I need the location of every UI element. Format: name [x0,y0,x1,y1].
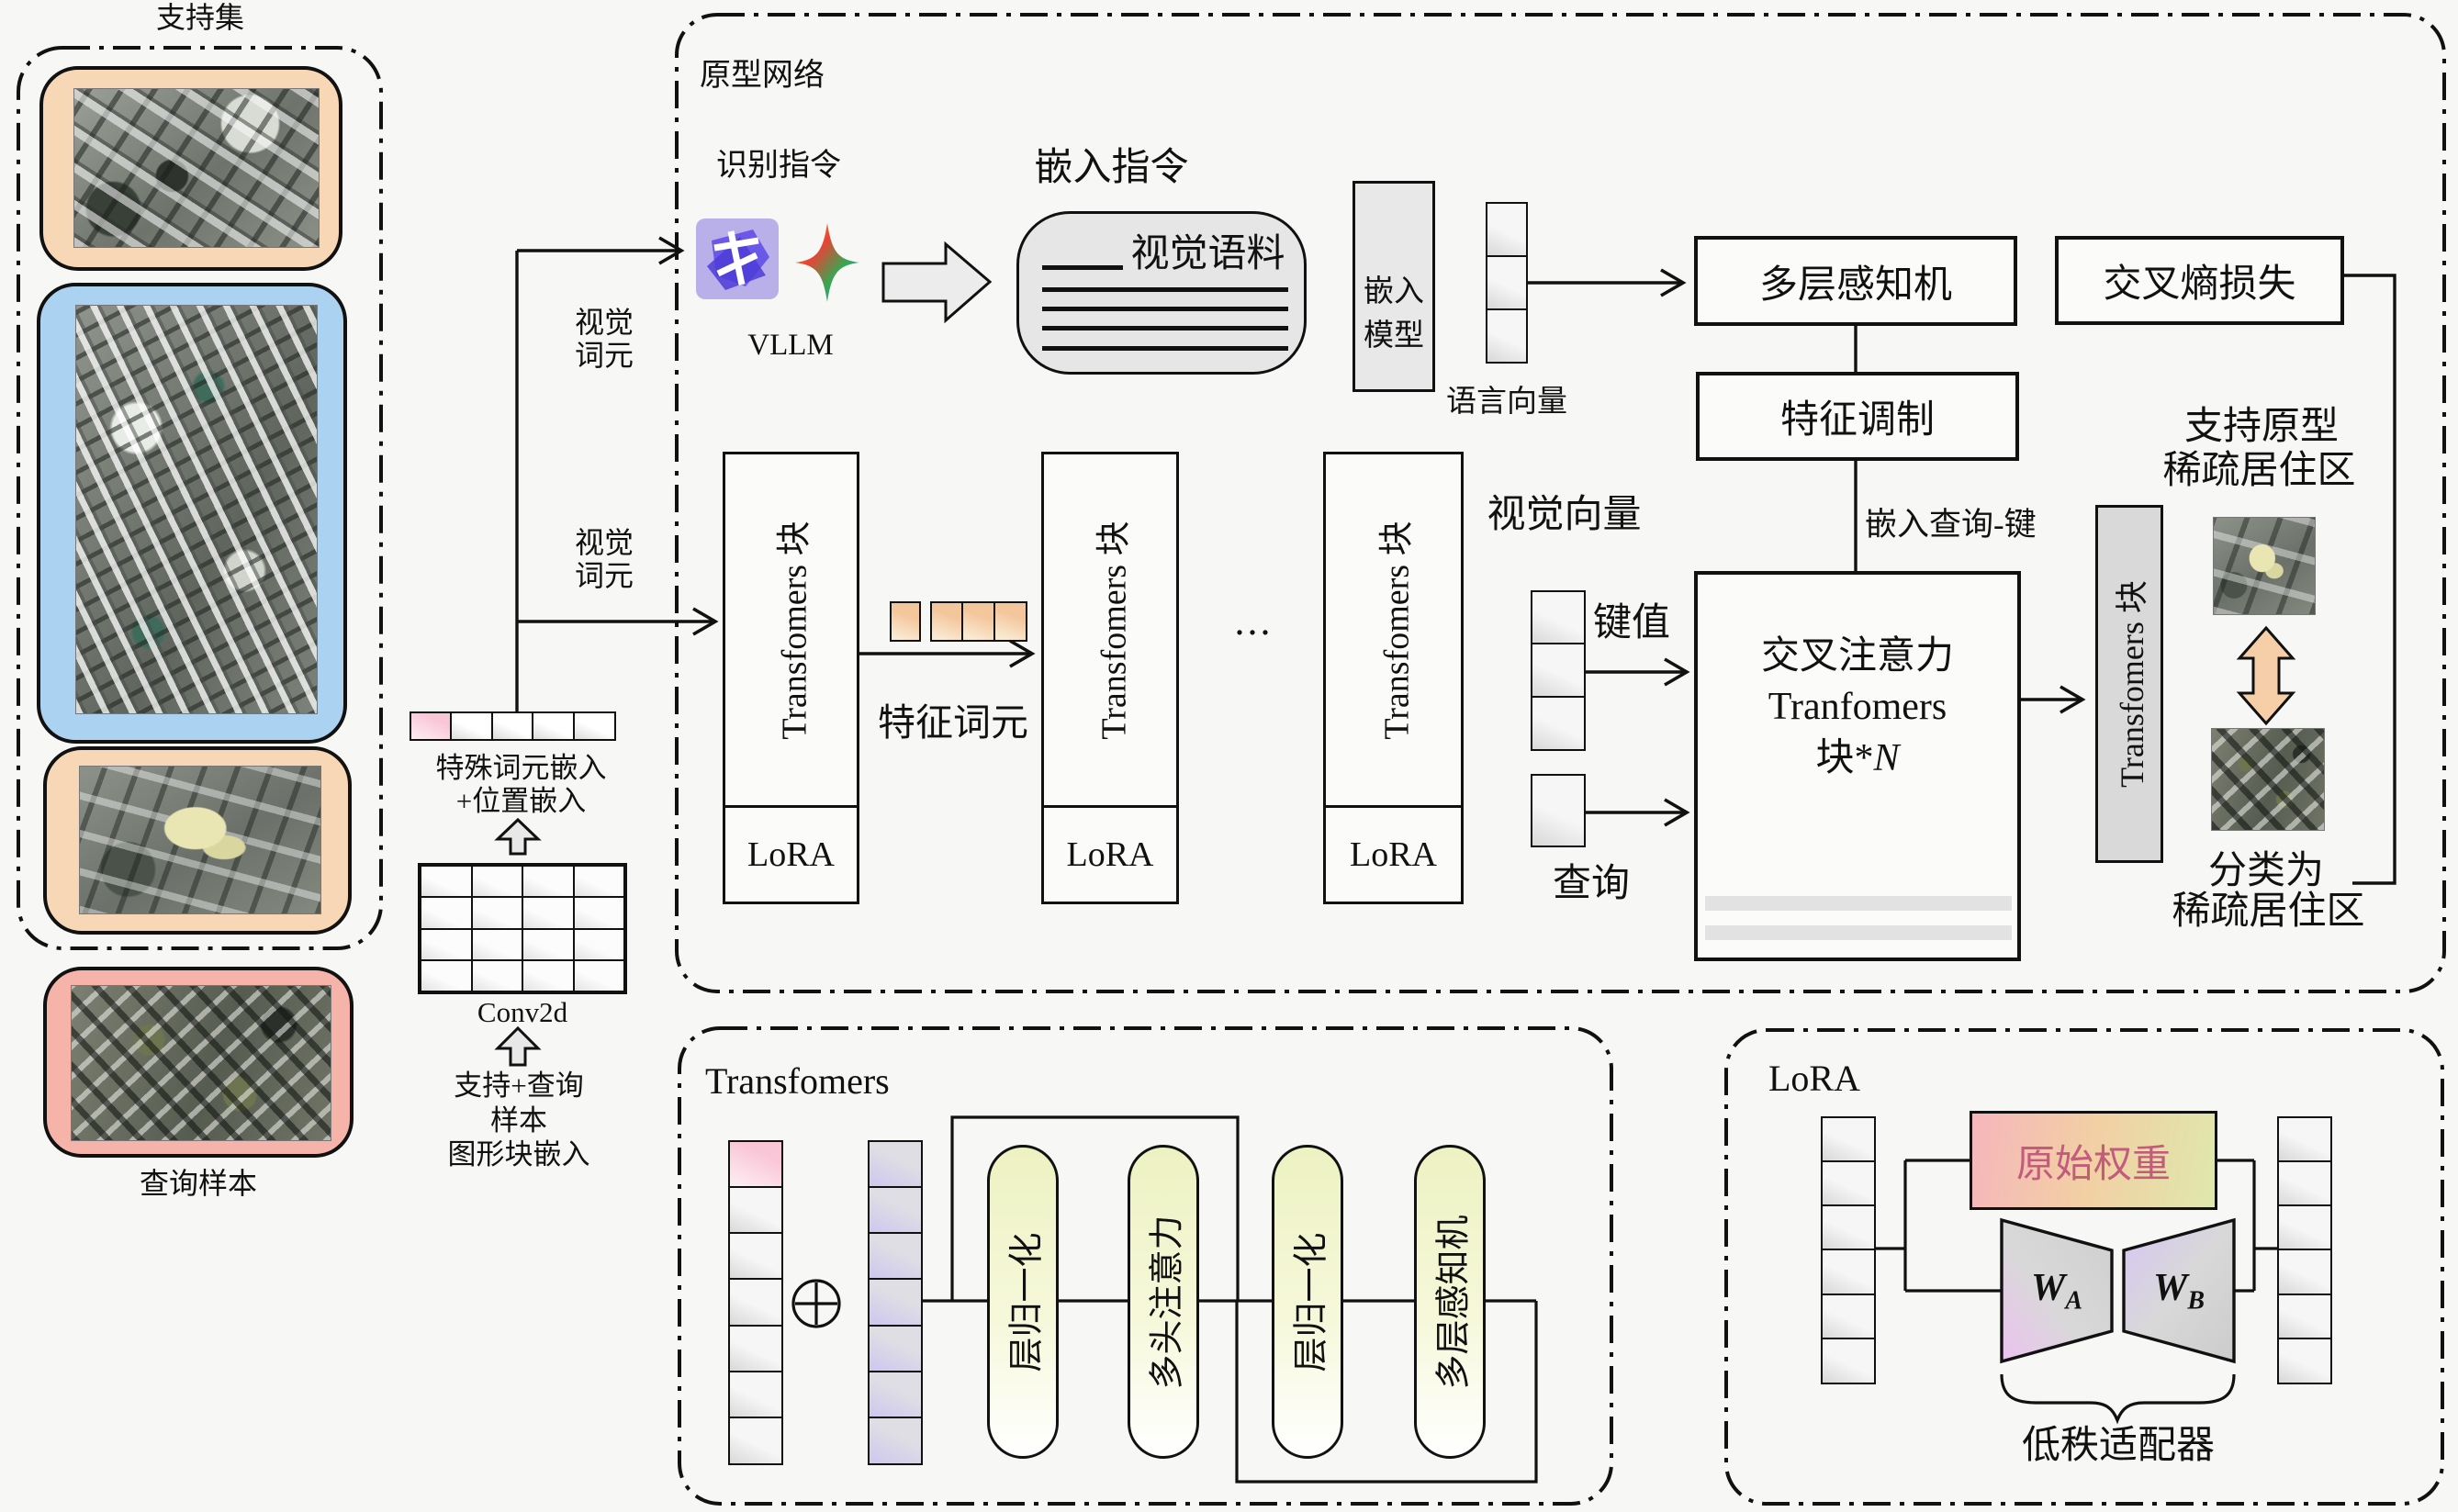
support-aerial-image [73,88,320,248]
vector-cell [1821,1204,1876,1251]
conv2d-grid [418,863,627,994]
embed-model-box: 嵌入 模型 [1352,181,1435,392]
conv2d-label: Conv2d [418,997,627,1029]
embed-model-label: 嵌入 模型 [1355,271,1432,359]
transformer-lora-block: Transfomers 块 LoRA [1323,452,1464,904]
support-aerial-image [75,305,318,714]
mlp-box: 多层感知机 [1694,236,2017,326]
recognition-instruction-label: 识别指令 [696,149,861,184]
low-rank-adapter-label: 低秩适配器 [2013,1425,2224,1468]
pos-embed-label: +位置嵌入 [399,786,643,818]
token-cell [868,1232,923,1281]
summed-token-column [868,1142,923,1465]
token-cell [868,1371,923,1419]
classified-class-label: 稀疏居住区 [2165,890,2372,934]
support-aerial-image [79,766,321,914]
wa-label: WA [2017,1267,2096,1316]
lora-input-column [1821,1118,1876,1384]
token-cell [868,1325,923,1373]
transformer-detail-title: Transfomers [705,1061,962,1103]
transformer-block-label: Transfomers 块 [766,521,816,739]
block-arrow-right-icon [883,244,990,320]
layer-norm-pill: 层归一化 [1272,1145,1343,1459]
patch-src-label: 样本 [399,1105,638,1137]
vector-cell [1821,1294,1876,1340]
token-cell [491,711,534,741]
special-token-label: 特殊词元嵌入 [399,753,643,785]
embedding-instruction-label: 嵌入指令 [1008,147,1215,190]
token-cell [573,711,616,741]
vector-cell [1821,1160,1876,1207]
token-cell [868,1140,923,1189]
token-cell [728,1278,783,1327]
vector-cell [1486,202,1528,258]
token-cell [532,711,575,741]
vllm-label: VLLM [722,329,859,363]
lora-detail-title: LoRA [1768,1058,1915,1100]
vector-cell [1821,1116,1876,1163]
feature-token-label: 特征词元 [861,702,1045,745]
original-weight-box: 原始权重 [1970,1111,2217,1210]
vector-cell [2277,1116,2332,1163]
multi-head-attention-pill: 多头注意力 [1128,1145,1199,1459]
token-cell [728,1140,783,1189]
double-arrow-vertical-icon [2239,628,2293,723]
query-aerial-image [71,985,331,1141]
token-cell [728,1232,783,1281]
token-cell [868,1417,923,1465]
visual-corpus-box: 视觉语料 [1016,211,1307,375]
ellipsis-label: ... [1219,599,1288,644]
token-cell [728,1186,783,1235]
patch-src-label: 图形块嵌入 [399,1139,638,1171]
input-token-column [728,1142,783,1465]
prototype-aerial-image [2213,517,2316,615]
gemini-star-icon [795,223,859,302]
transformer-lora-block: Transfomers 块 LoRA [1041,452,1179,904]
wb-label: WB [2139,1267,2218,1316]
support-set-title: 支持集 [118,2,283,35]
special-token-row [411,711,629,741]
support-prototype-class-label: 稀疏居住区 [2156,450,2363,493]
block-arrow-up-icon [498,820,538,854]
feature-modulation-box: 特征调制 [1696,372,2019,461]
block-arrow-up-icon [498,1028,538,1065]
classified-query-aerial-image [2211,728,2325,831]
query-sample-card [43,967,354,1158]
vector-cell [2277,1160,2332,1207]
key-value-label: 键值 [1593,602,1694,645]
figure-canvas: { "support_set": { "title": "支持集", "quer… [0,0,2458,1512]
token-cell [410,711,453,741]
vector-cell [1821,1338,1876,1384]
language-vector [1486,204,1528,364]
patch-src-label: 支持+查询 [399,1070,638,1103]
lora-sub-box: LoRA [1326,805,1461,902]
layer-norm-pill: 层归一化 [987,1145,1059,1459]
vector-cell [1531,774,1586,848]
query-vector [1531,776,1586,847]
token-cell [450,711,493,741]
language-vector-label: 语言向量 [1438,386,1576,420]
cross-attention-label: 交叉注意力 Tranfomers 块*N [1698,632,2017,784]
vector-cell [1821,1249,1876,1295]
vllm-logo-icon [696,218,779,299]
prototype-panel-title: 原型网络 [700,59,902,94]
key-value-vector [1531,592,1586,751]
ce-loss-box: 交叉熵损失 [2055,236,2344,325]
visual-vector-label: 视觉向量 [1475,494,1654,537]
token-cell [728,1417,783,1465]
token-cell [728,1371,783,1419]
vector-cell [2277,1338,2332,1384]
lora-output-column [2277,1118,2332,1384]
token-cell [728,1325,783,1373]
output-transformer-block: Transfomers 块 [2095,505,2163,863]
lora-sub-box: LoRA [1044,805,1176,902]
vector-cell [1486,308,1528,364]
mlp-pill: 多层感知机 [1414,1145,1486,1459]
feature-token [892,601,923,642]
feature-token-group [932,601,1033,642]
support-sample-card [37,283,347,744]
visual-corpus-label: 视觉语料 [1123,233,1293,276]
vector-cell [2277,1204,2332,1251]
transformer-lora-block: Transfomers 块 LoRA [723,452,859,904]
token-cell [868,1278,923,1327]
query-vector-label: 查询 [1541,863,1642,906]
cross-attention-box: 交叉注意力 Tranfomers 块*N [1694,571,2021,961]
vector-cell [2277,1249,2332,1295]
support-sample-card [39,66,342,271]
visual-token-label-top: 视觉词元 [556,307,652,373]
transformer-block-label: Transfomers 块 [1085,521,1136,739]
query-sample-label: 查询样本 [116,1168,281,1201]
vector-cell [1531,696,1586,751]
embed-query-key-label: 嵌入查询-键 [1865,507,2104,543]
vector-cell [1531,590,1586,645]
vector-cell [2277,1294,2332,1340]
lora-sub-box: LoRA [725,805,857,902]
vector-cell [1486,255,1528,311]
support-sample-card [43,746,352,935]
vector-cell [1531,643,1586,698]
transformer-block-label: Transfomers 块 [1368,521,1419,739]
support-prototype-label: 支持原型 [2174,406,2349,449]
classified-as-label: 分类为 [2202,850,2330,893]
visual-token-label-mid: 视觉词元 [556,527,652,593]
token-cell [868,1186,923,1235]
